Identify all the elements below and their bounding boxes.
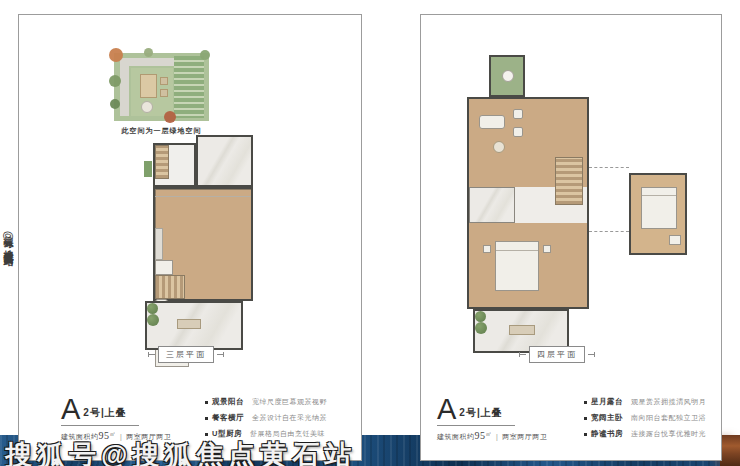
bed (495, 241, 539, 291)
plan-tag-third-floor: 三层平面 (147, 346, 225, 363)
plan-tag-label: 四层平面 (529, 346, 585, 363)
feature-name: 星月露台 (591, 397, 623, 407)
unit-title: A 2号|上叠 (61, 396, 171, 422)
garden-table (140, 74, 157, 98)
unit-letter: A (437, 396, 456, 422)
coffee-table (493, 141, 505, 153)
area-rooms: 两室两厅两卫 (502, 433, 547, 440)
floorplan-card-fourth-floor: 四层平面 A 2号|上叠 建筑面积约95㎡|两室两厅两卫 星月露台 观星赏景拥揽… (420, 14, 722, 461)
feature-item: 宽阔主卧 南向阳台套配独立卫浴 (584, 413, 706, 423)
third-floor-plan (141, 135, 253, 350)
terrace-table (502, 70, 514, 82)
bullet-square-icon (205, 417, 208, 420)
kitchen-counter (155, 228, 163, 260)
garden-chair (160, 77, 168, 85)
garden-chair (160, 89, 168, 97)
plan-tag-fourth-floor: 四层平面 (518, 346, 596, 363)
armchair (513, 109, 523, 119)
study-room (629, 173, 687, 255)
bullet-square-icon (205, 433, 208, 436)
living-dining-room (153, 187, 253, 301)
watermark-bottom: 搜狐号@搜狐焦点黄石站 (5, 437, 356, 466)
page: 此空间为一层绿地空间 (0, 0, 740, 466)
door-mat (144, 161, 152, 177)
watermark-vertical: 搜狐号@搜狐焦点黄石站 (1, 228, 15, 249)
unit-title: A 2号|上叠 (437, 396, 547, 422)
tree-icon (200, 50, 210, 60)
garden-planting-beds (174, 56, 204, 118)
area-unit: ㎡ (486, 431, 493, 437)
bench (177, 319, 201, 329)
garden-path (120, 58, 129, 116)
feature-desc: 观星赏景拥揽清风明月 (631, 397, 706, 407)
tree-icon (164, 111, 176, 123)
unit-title-block: A 2号|上叠 建筑面积约95㎡|两室两厅两卫 (61, 396, 171, 442)
tag-tick (217, 354, 224, 355)
sofa (479, 115, 505, 129)
feature-item: 餐客横厅 全景设计自在采光纳景 (205, 413, 327, 423)
connector-dashed-line (589, 167, 629, 168)
lounge-chair (509, 325, 535, 335)
unit-letter: A (61, 396, 80, 422)
floorplan-card-third-floor: 此空间为一层绿地空间 (18, 14, 362, 461)
unit-divider-line (437, 425, 515, 426)
plant-icon (147, 303, 158, 314)
tree-icon (110, 99, 120, 109)
unit-suffix: 2号|上叠 (83, 406, 126, 420)
unit-suffix: 2号|上叠 (459, 406, 502, 420)
bed-line (496, 250, 538, 251)
plant-icon (147, 314, 159, 326)
unit-title-block: A 2号|上叠 建筑面积约95㎡|两室两厅两卫 (437, 396, 547, 442)
plan-tag-label: 三层平面 (158, 346, 214, 363)
connector-dashed-line (589, 231, 629, 232)
tree-icon (109, 75, 121, 87)
balcony-room (145, 301, 243, 350)
bullet-square-icon (584, 401, 587, 404)
feature-list: 星月露台 观星赏景拥揽清风明月 宽阔主卧 南向阳台套配独立卫浴 静谧书房 连接露… (584, 397, 706, 445)
area-value: 95 (475, 430, 486, 441)
garden-firepit (141, 101, 153, 113)
wall-line (155, 189, 251, 190)
desk (669, 235, 681, 245)
dining-table (155, 260, 173, 275)
entry-room (153, 143, 196, 187)
feature-item: 观景阳台 宽绰尺度巨幕观景视野 (205, 397, 327, 407)
feature-item: 星月露台 观星赏景拥揽清风明月 (584, 397, 706, 407)
area-line: 建筑面积约95㎡|两室两厅两卫 (437, 430, 547, 442)
bathroom (469, 187, 515, 223)
bed (641, 187, 677, 229)
bed-line (155, 196, 251, 197)
main-unit (467, 97, 589, 309)
painting-band-brown (720, 435, 740, 466)
tree-icon (144, 48, 153, 57)
bullet-square-icon (584, 433, 587, 436)
feature-item: 静谧书房 连接露台悦享优雅时光 (584, 429, 706, 439)
terrace-room (196, 135, 253, 187)
feature-name: 宽阔主卧 (591, 413, 623, 423)
feature-name: 静谧书房 (591, 429, 623, 439)
nightstand (543, 245, 551, 253)
feature-name: 餐客横厅 (212, 413, 244, 423)
unit-divider-line (61, 425, 139, 426)
stairs (155, 145, 169, 179)
feature-desc: 宽绰尺度巨幕观景视野 (252, 397, 327, 407)
nightstand (483, 245, 491, 253)
terrace-room (489, 55, 525, 97)
fourth-floor-plan (459, 55, 689, 355)
feature-desc: 连接露台悦享优雅时光 (631, 429, 706, 439)
stairs (555, 157, 583, 205)
bullet-square-icon (205, 401, 208, 404)
tree-icon (109, 48, 123, 62)
plant-icon (475, 311, 486, 322)
tag-tick (148, 354, 155, 355)
plant-icon (475, 322, 487, 334)
area-prefix: 建筑面积约 (437, 433, 475, 440)
armchair (513, 127, 523, 137)
garden-plan (114, 53, 209, 121)
feature-desc: 全景设计自在采光纳景 (252, 413, 327, 423)
bullet-square-icon (584, 417, 587, 420)
stairs (155, 275, 185, 299)
bed-line (642, 195, 676, 196)
master-bedroom (469, 223, 587, 307)
feature-desc: 南向阳台套配独立卫浴 (631, 413, 706, 423)
feature-name: 观景阳台 (212, 397, 244, 407)
area-divider: | (496, 433, 498, 440)
tag-tick (588, 354, 595, 355)
tag-tick (519, 354, 526, 355)
